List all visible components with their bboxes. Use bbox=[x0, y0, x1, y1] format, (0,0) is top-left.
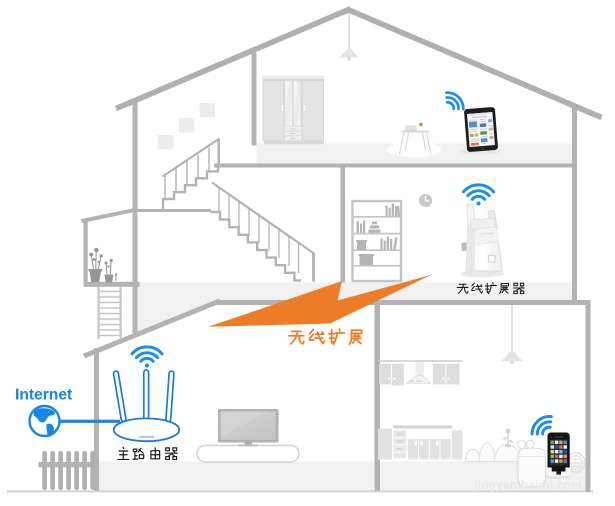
svg-text:jingyan.baidu.com: jingyan.baidu.com bbox=[473, 478, 582, 492]
svg-text:Internet: Internet bbox=[15, 387, 72, 404]
